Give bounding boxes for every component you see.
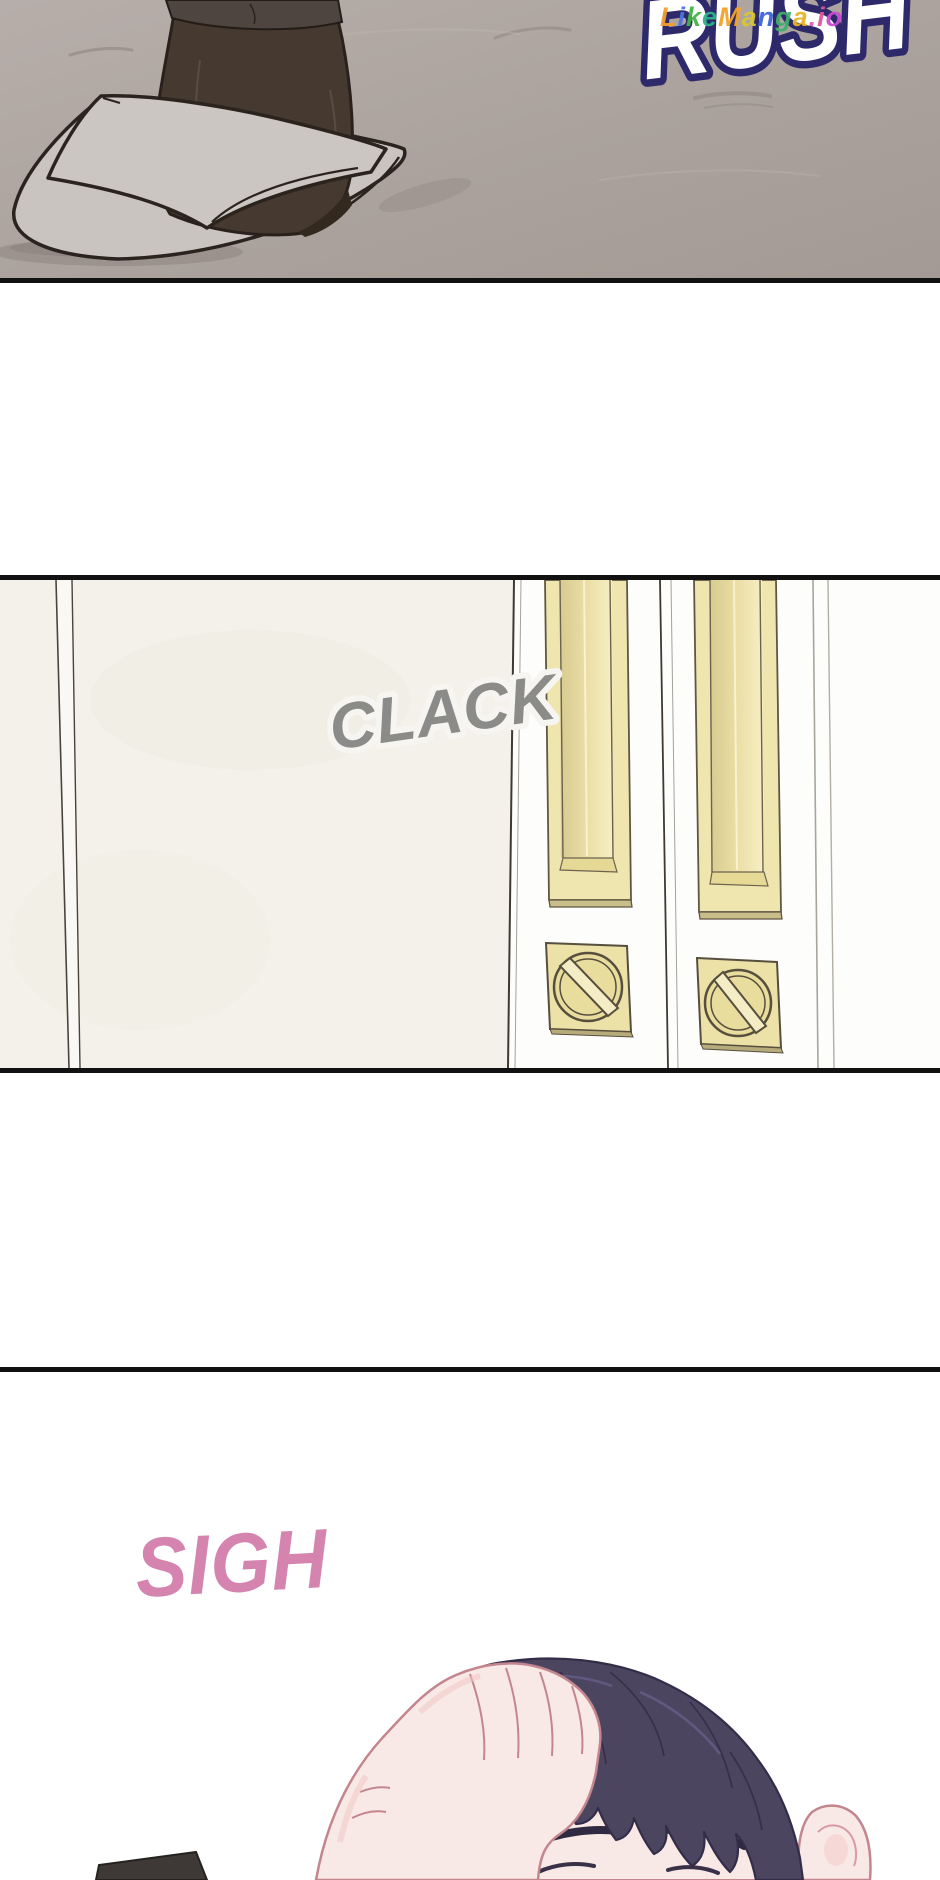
watermark-letter: .	[809, 2, 818, 32]
watermark-letter: k	[686, 2, 702, 32]
sleeve	[96, 1852, 207, 1880]
watermark-letter: i	[678, 2, 687, 32]
watermark-letter: e	[702, 2, 718, 32]
sfx-rush-layer: RUSH	[0, 0, 940, 278]
door-shading-2	[10, 850, 270, 1030]
webtoon-page: RUSH LikeManga.io	[0, 0, 940, 1880]
watermark-letter: i	[817, 2, 826, 32]
door-pull-handle-1	[545, 580, 632, 907]
watermark-letter: n	[758, 2, 776, 32]
door-pull-handle-2	[694, 580, 782, 919]
watermark-letter: a	[742, 2, 758, 32]
door-illustration: CLACK CLACK	[0, 580, 940, 1068]
panel-floor-scene: RUSH LikeManga.io	[0, 0, 940, 283]
watermark-letter: M	[718, 2, 742, 32]
watermark-letter: o	[826, 2, 844, 32]
panel-sigh-scene: SIGH	[0, 1367, 940, 1880]
character-illustration	[0, 1372, 940, 1880]
site-watermark: LikeManga.io	[660, 2, 843, 33]
ear	[799, 1806, 871, 1880]
watermark-letter: g	[775, 2, 793, 32]
watermark-letter: a	[793, 2, 809, 32]
panel-door-scene: CLACK CLACK	[0, 575, 940, 1073]
thumb-turn-lock-1	[546, 943, 633, 1037]
watermark-letter: L	[660, 2, 678, 32]
thumb-turn-lock-2	[697, 958, 783, 1053]
